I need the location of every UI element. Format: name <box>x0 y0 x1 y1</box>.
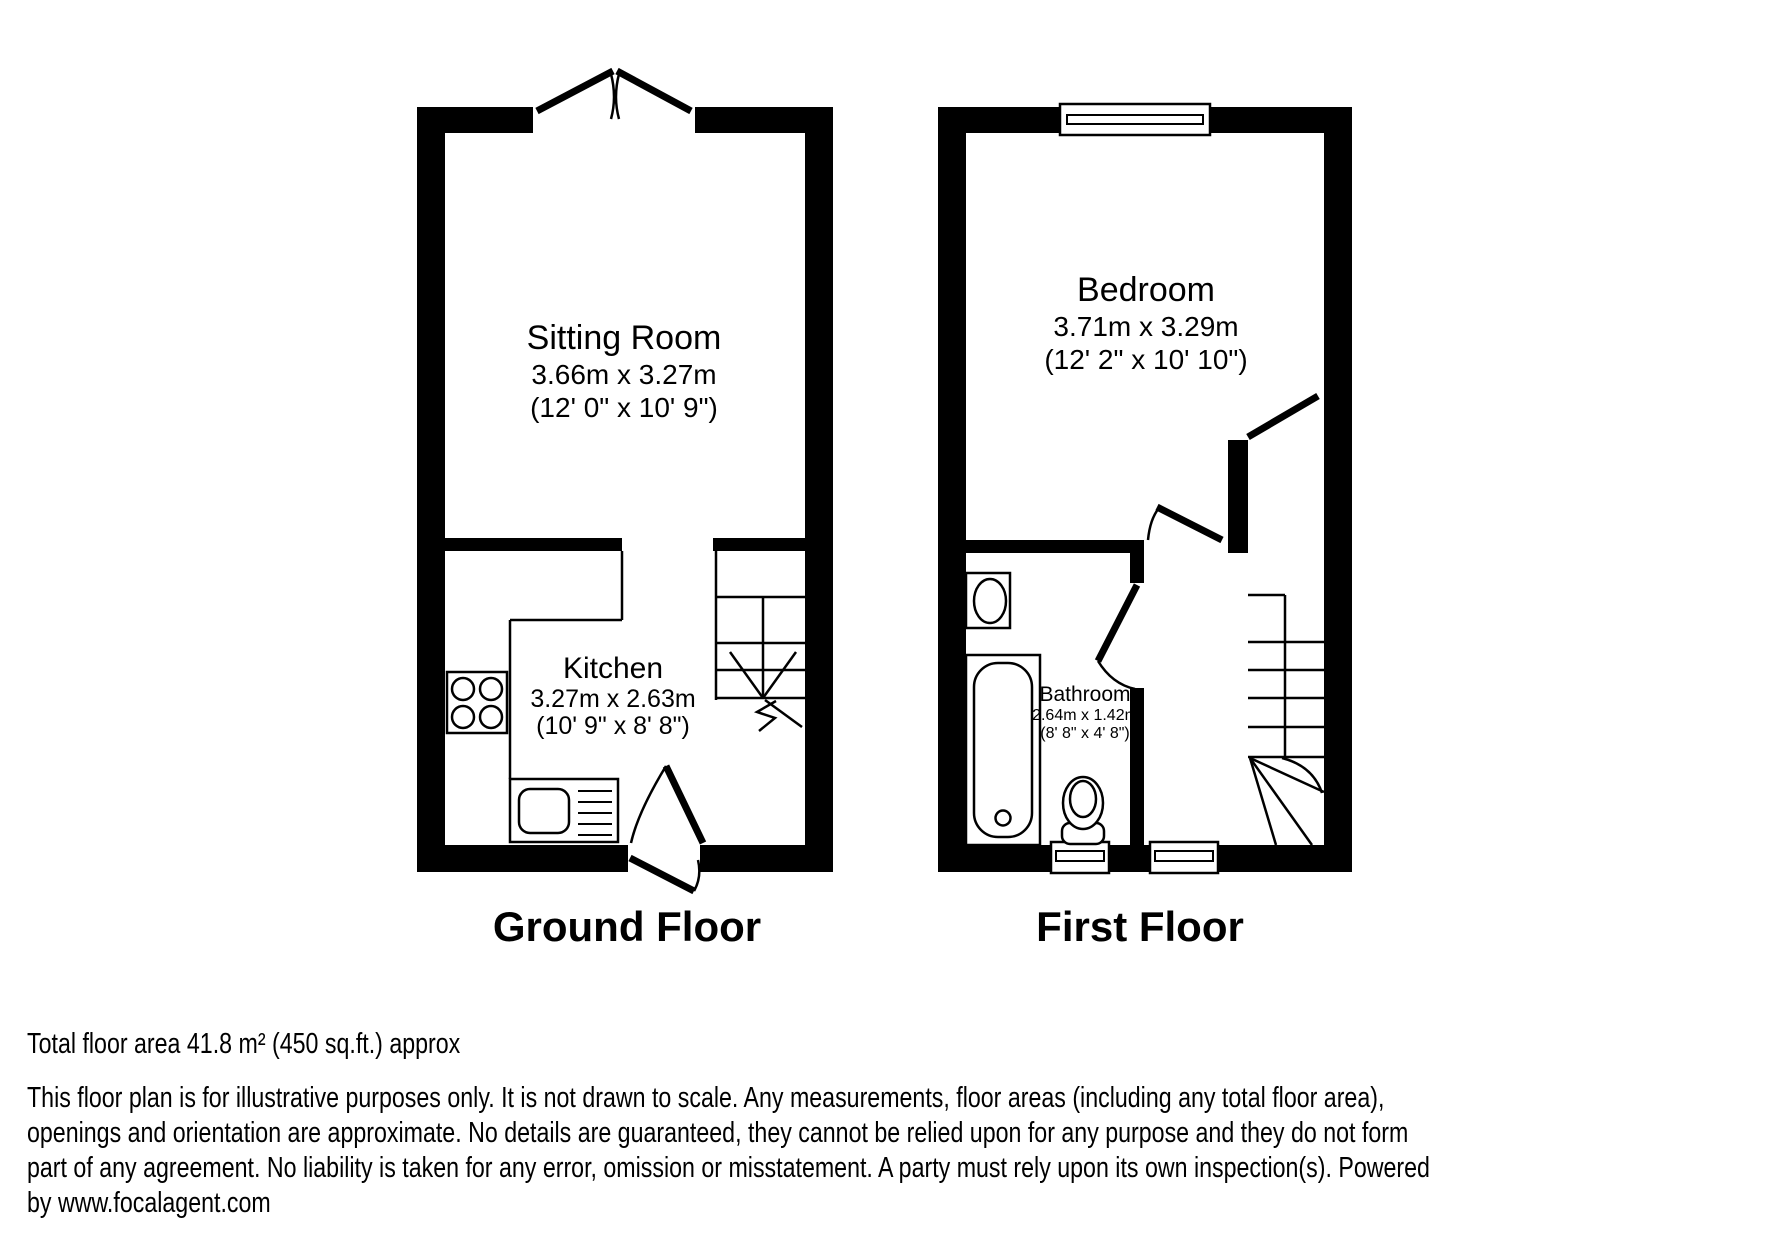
first-floor-title: First Floor <box>1036 903 1244 951</box>
bathroom-door-icon <box>1098 585 1137 689</box>
hob-icon <box>447 672 507 733</box>
bathroom-window-icon <box>1051 842 1109 873</box>
interior-door-icon <box>631 766 703 843</box>
ground-floor-title: Ground Floor <box>493 903 761 951</box>
landing-door-icon <box>1148 507 1222 540</box>
winder-staircase-icon <box>1248 595 1324 845</box>
staircase-icon <box>716 551 805 731</box>
kitchen-label: Kitchen 3.27m x 2.63m (10' 9" x 8' 8") <box>530 651 695 740</box>
ground-floor-walls <box>417 107 833 872</box>
room-dimensions-metric: 3.27m x 2.63m <box>530 686 695 713</box>
floorplan-page: Sitting Room 3.66m x 3.27m (12' 0" x 10'… <box>0 0 1771 1239</box>
room-dimensions-metric: 2.64m x 1.42m <box>1032 707 1138 725</box>
room-dimensions-metric: 3.71m x 3.29m <box>1044 310 1247 343</box>
ground-floor-plan <box>417 71 833 891</box>
room-dimensions-imperial: (10' 9" x 8' 8") <box>530 713 695 740</box>
basin-icon <box>966 573 1010 628</box>
bathtub-icon <box>966 655 1040 845</box>
disclaimer-line-1: This floor plan is for illustrative purp… <box>27 1082 1384 1115</box>
bedroom-label: Bedroom 3.71m x 3.29m (12' 2" x 10' 10") <box>1044 270 1247 376</box>
french-doors-icon <box>537 71 691 119</box>
room-name: Sitting Room <box>527 318 722 358</box>
first-floor-plan <box>938 104 1352 873</box>
stair-direction-arrow <box>730 652 763 698</box>
room-name: Bathroom <box>1032 683 1138 707</box>
disclaimer-line-2: openings and orientation are approximate… <box>27 1117 1408 1150</box>
sink-icon <box>510 779 618 842</box>
disclaimer-line-4: by www.focalagent.com <box>27 1187 271 1220</box>
room-dimensions-imperial: (12' 2" x 10' 10") <box>1044 343 1247 376</box>
landing-window-icon <box>1150 842 1218 873</box>
sitting-room-label: Sitting Room 3.66m x 3.27m (12' 0" x 10'… <box>527 318 722 424</box>
room-name: Kitchen <box>530 651 695 686</box>
bedroom-window-icon <box>1060 104 1210 135</box>
room-dimensions-imperial: (8' 8" x 4' 8") <box>1032 725 1138 743</box>
total-floor-area: Total floor area 41.8 m² (450 sq.ft.) ap… <box>27 1028 460 1061</box>
toilet-icon <box>1062 777 1104 844</box>
front-door-icon <box>630 858 699 891</box>
room-name: Bedroom <box>1044 270 1247 310</box>
disclaimer-line-3: part of any agreement. No liability is t… <box>27 1152 1430 1185</box>
room-dimensions-metric: 3.66m x 3.27m <box>527 358 722 391</box>
bathroom-label: Bathroom 2.64m x 1.42m (8' 8" x 4' 8") <box>1032 683 1138 743</box>
bedroom-door-icon <box>1248 396 1318 437</box>
room-dimensions-imperial: (12' 0" x 10' 9") <box>527 391 722 424</box>
